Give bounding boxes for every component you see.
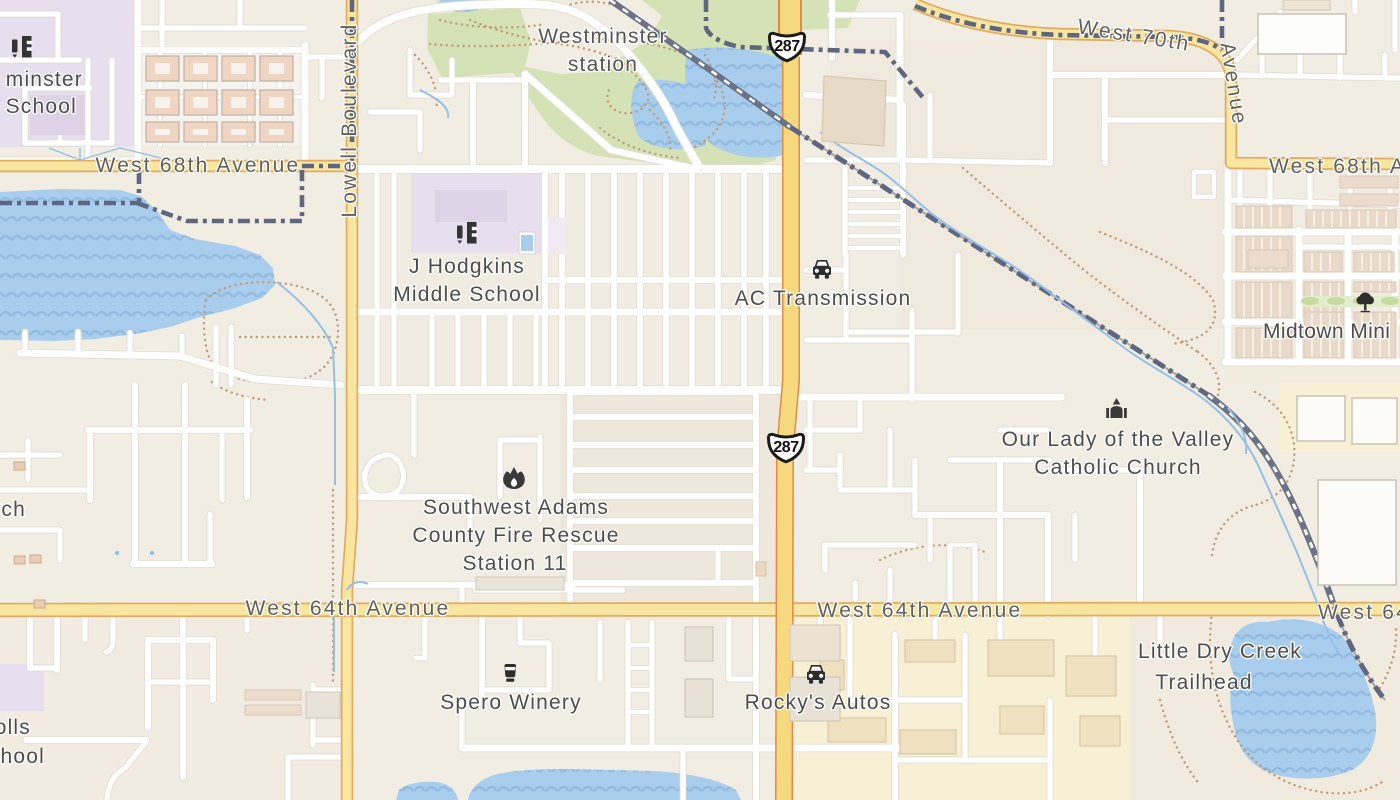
svg-text:West 68th A: West 68th A bbox=[1269, 155, 1400, 178]
svg-text:West 68th Avenue: West 68th Avenue bbox=[96, 154, 301, 177]
svg-text:Trailhead: Trailhead bbox=[1155, 671, 1253, 694]
svg-text:Spero Winery: Spero Winery bbox=[440, 691, 582, 714]
svg-text:J Hodgkins: J Hodgkins bbox=[409, 255, 525, 278]
svg-text:Westminster: Westminster bbox=[538, 25, 668, 48]
svg-text:Midtown Mini: Midtown Mini bbox=[1263, 320, 1390, 343]
svg-text:Station 11: Station 11 bbox=[462, 552, 567, 575]
svg-text:West 64th Avenue: West 64th Avenue bbox=[818, 599, 1023, 622]
svg-text:Catholic Church: Catholic Church bbox=[1034, 456, 1201, 479]
svg-text:287: 287 bbox=[773, 439, 799, 456]
svg-text:Our Lady of the Valley: Our Lady of the Valley bbox=[1002, 428, 1235, 451]
svg-text:rch: rch bbox=[0, 498, 26, 521]
svg-text:Little Dry Creek: Little Dry Creek bbox=[1138, 640, 1302, 663]
svg-text:West 64th Avenue: West 64th Avenue bbox=[246, 597, 451, 620]
svg-text:olls: olls bbox=[0, 716, 31, 739]
svg-text:hool: hool bbox=[0, 745, 45, 768]
svg-text:Rocky's Autos: Rocky's Autos bbox=[745, 691, 892, 714]
svg-text:station: station bbox=[568, 53, 638, 76]
svg-text:Southwest Adams: Southwest Adams bbox=[423, 496, 609, 519]
svg-text:Middle School: Middle School bbox=[393, 283, 541, 306]
svg-text:School: School bbox=[6, 95, 77, 118]
svg-text:minster: minster bbox=[6, 68, 83, 91]
svg-text:AC Transmission: AC Transmission bbox=[735, 287, 912, 310]
svg-text:County Fire Rescue: County Fire Rescue bbox=[412, 524, 619, 547]
svg-text:Lowell Boulevard: Lowell Boulevard bbox=[338, 22, 361, 217]
svg-text:287: 287 bbox=[774, 38, 800, 55]
svg-text:West 64th Avenue: West 64th Avenue bbox=[1318, 601, 1400, 624]
